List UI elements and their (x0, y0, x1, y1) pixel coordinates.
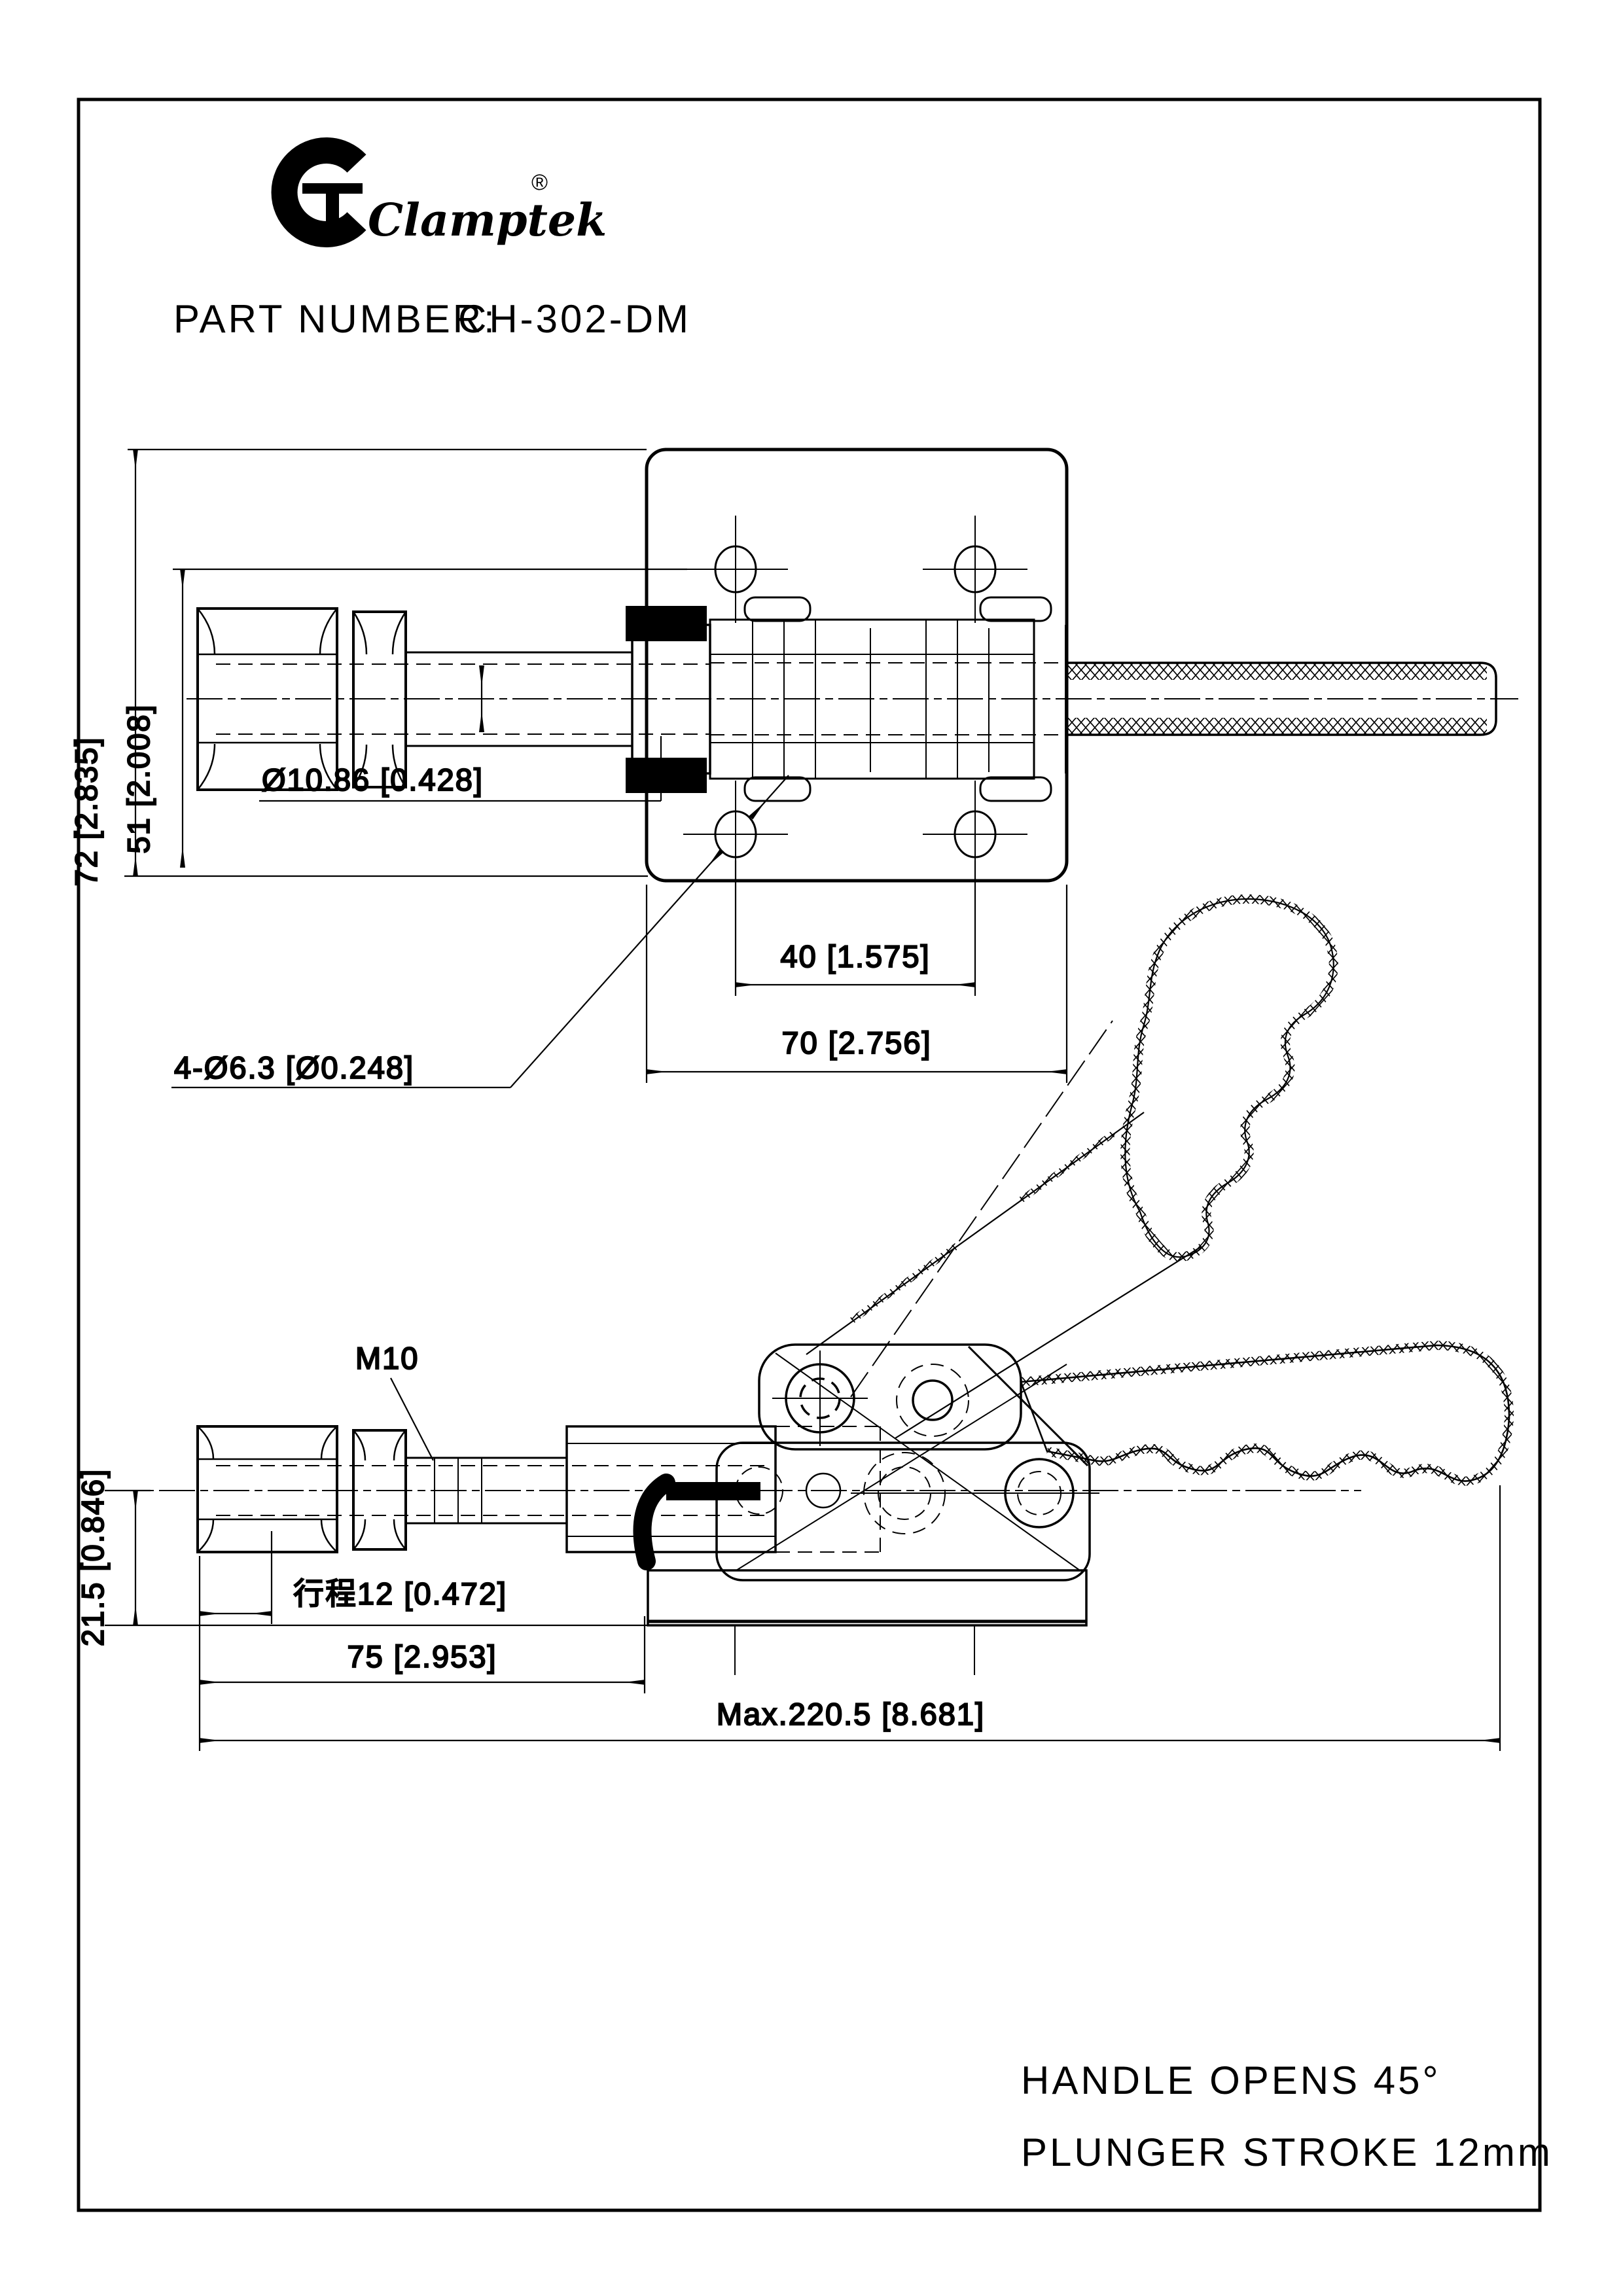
title-block: PART NUMBER: CH-302-DM (173, 297, 691, 341)
side-seal-mark (642, 1483, 760, 1561)
open-grip-knurl (1125, 899, 1333, 1257)
dim-shaft-dia: Ø10.86 [0.428] (262, 762, 484, 797)
side-view (105, 899, 1509, 1675)
closed-handle (1021, 1345, 1509, 1481)
drawing-sheet: Clamptek ® PART NUMBER: CH-302-DM (0, 0, 1623, 2296)
part-number-value: CH-302-DM (458, 297, 691, 341)
side-view-dimensions: M10 21.5 [0.846] 行程12 [0.472] 75 [2.953]… (75, 1341, 1500, 1751)
note-plunger-stroke: PLUNGER STROKE 12mm (1021, 2130, 1553, 2174)
closed-handle-outline (1021, 1345, 1509, 1481)
dim-21-5: 21.5 [0.846] (75, 1468, 110, 1646)
seal-block-top (627, 607, 705, 640)
dim-stroke: 行程12 [0.472] (293, 1576, 507, 1611)
part-number-label: PART NUMBER: (173, 297, 497, 341)
seal-block-bottom (627, 759, 705, 792)
technical-drawing: Clamptek ® PART NUMBER: CH-302-DM (0, 0, 1623, 2296)
registered-icon: ® (531, 170, 548, 195)
brand-logo: Clamptek ® (285, 150, 607, 247)
dim-72: 72 [2.835] (69, 736, 103, 886)
top-view-dimensions: 72 [2.835] 51 [2.008] Ø10.86 [0.428] 4-Ø… (69, 450, 1067, 1087)
dim-51: 51 [2.008] (121, 703, 156, 853)
dim-70: 70 [2.756] (781, 1025, 931, 1060)
dim-m10: M10 (355, 1341, 419, 1375)
brand-name: Clamptek (368, 194, 607, 247)
mounting-holes (683, 516, 1027, 888)
sheet-border (79, 99, 1540, 2210)
rod-knurl-top (1068, 663, 1487, 680)
logo-t-stem (326, 183, 339, 228)
top-view (187, 450, 1518, 888)
rod-knurl-bottom (1068, 718, 1487, 735)
dim-holes: 4-Ø6.3 [Ø0.248] (174, 1050, 414, 1085)
dim-40: 40 [1.575] (780, 939, 930, 974)
dim-max: Max.220.5 [8.681] (717, 1697, 985, 1731)
dim-75: 75 [2.953] (347, 1639, 497, 1674)
note-handle-opens: HANDLE OPENS 45° (1021, 2058, 1441, 2102)
open-handle-centerline (851, 1021, 1113, 1397)
notes: HANDLE OPENS 45° PLUNGER STROKE 12mm (1021, 2058, 1553, 2174)
side-base-block (105, 1570, 1086, 1675)
